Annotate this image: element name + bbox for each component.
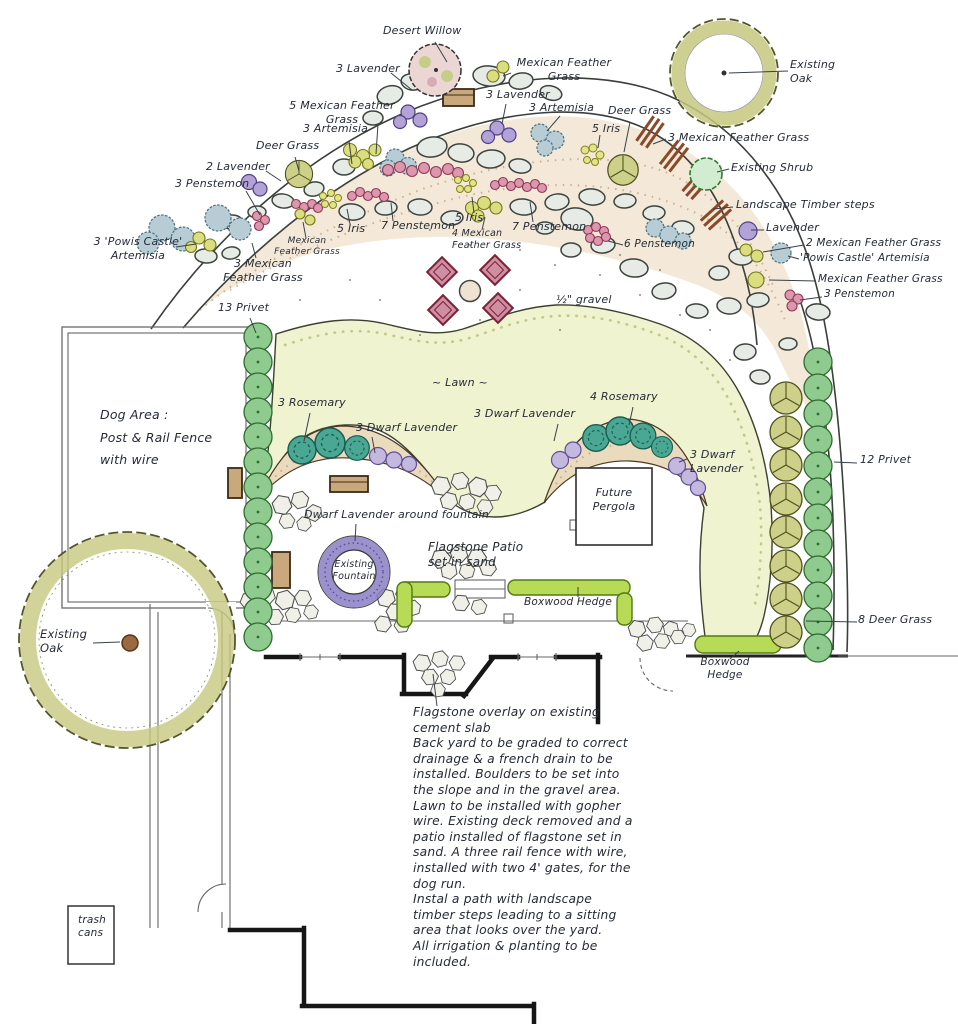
label-13-privet: 13 Privet (218, 301, 269, 315)
label-existing-fountain: Existing Fountain (322, 559, 386, 583)
desert-willow-tree (409, 44, 461, 96)
label-7-penstemon-mid: 7 Penstemon (512, 220, 586, 234)
label-2-lavender: 2 Lavender (206, 160, 270, 174)
label-lawn: ~ Lawn ~ (432, 376, 488, 390)
landscape-plan-drawing: Desert Willow 3 Lavender Mexican Feather… (0, 0, 958, 1024)
label-5-iris-top: 5 Iris (592, 122, 620, 136)
label-3-mexican-feather-grass-right: 3 Mexican Feather Grass (668, 131, 809, 145)
label-flagstone-patio: Flagstone Patio set in sand (428, 540, 523, 570)
label-future-pergola: Future Pergola (576, 486, 652, 514)
label-2-mexican-feather-grass: 2 Mexican Feather Grass (806, 237, 941, 250)
label-3-lavender-mid: 3 Lavender (486, 88, 550, 102)
label-3-artemisia-right: 3 Artemisia (529, 101, 594, 115)
existing-oak-top (670, 19, 778, 127)
plan-notes: Flagstone overlay on existing cement sla… (413, 705, 665, 970)
label-dog-area: Dog Area : Post & Rail Fence with wire (100, 404, 212, 472)
label-mexican-feather-grass-right: Mexican Feather Grass (818, 273, 943, 286)
label-3-penstemon-right: 3 Penstemon (824, 288, 895, 301)
label-boxwood-hedge-b: Boxwood Hedge (694, 656, 756, 682)
label-3-penstemon-left: 3 Penstemon (175, 177, 249, 191)
label-3-dwarf-lavender-b: 3 Dwarf Lavender (474, 407, 575, 421)
existing-shrub (690, 158, 722, 190)
label-gravel: ½" gravel (556, 293, 612, 307)
label-landscape-timber-steps: Landscape Timber steps (736, 198, 875, 212)
label-existing-shrub: Existing Shrub (731, 161, 813, 175)
label-existing-oak-top: Existing Oak (790, 58, 835, 86)
sitting-area (427, 255, 513, 325)
label-3-mexican-feather-grass-left: 3 Mexican Feather Grass (220, 257, 306, 285)
privet-column-right (804, 348, 832, 662)
label-4-rosemary: 4 Rosemary (590, 390, 658, 404)
label-desert-willow: Desert Willow (383, 24, 461, 38)
label-8-deer-grass: 8 Deer Grass (858, 613, 932, 627)
label-mexican-feather-grass-small: Mexican Feather Grass (268, 236, 346, 259)
label-3-powis-castle-artemisia: 3 'Powis Castle' Artemisia (90, 235, 186, 263)
label-trash-cans: trash cans (78, 914, 106, 940)
label-5-iris-mid: 5 Iris (455, 211, 483, 225)
label-existing-oak-bottom: Existing Oak (40, 627, 87, 656)
label-3-rosemary: 3 Rosemary (278, 396, 346, 410)
label-5-iris-left: 5 Iris (337, 222, 365, 236)
label-mexican-feather-grass-top: Mexican Feather Grass (512, 56, 616, 84)
dog-area-fence (62, 327, 252, 634)
label-3-lavender-top: 3 Lavender (336, 62, 400, 76)
label-deer-grass-top: Deer Grass (608, 104, 671, 118)
label-3-dwarf-lavender-a: 3 Dwarf Lavender (356, 421, 457, 435)
label-3-dwarf-lavender-c: 3 Dwarf Lavender (690, 448, 743, 476)
label-lavender: Lavender (766, 221, 819, 235)
label-6-penstemon: 6 Penstemon (624, 238, 695, 251)
label-4-mexican-feather-grass: 4 Mexican Feather Grass (452, 228, 521, 252)
label-boxwood-hedge-a: Boxwood Hedge (524, 596, 612, 609)
privet-column-left (244, 323, 272, 651)
deer-grass-column (770, 382, 802, 648)
label-dwarf-lavender-around-fountain: Dwarf Lavender around fountain (304, 508, 489, 522)
label-3-artemisia-left: 3 Artemisia (303, 122, 368, 136)
label-12-privet: 12 Privet (860, 453, 911, 467)
label-powis-castle-artemisia-right: 'Powis Castle' Artemisia (800, 252, 930, 265)
label-7-penstemon-left: 7 Penstemon (381, 219, 455, 233)
label-deer-grass-left: Deer Grass (256, 139, 319, 153)
